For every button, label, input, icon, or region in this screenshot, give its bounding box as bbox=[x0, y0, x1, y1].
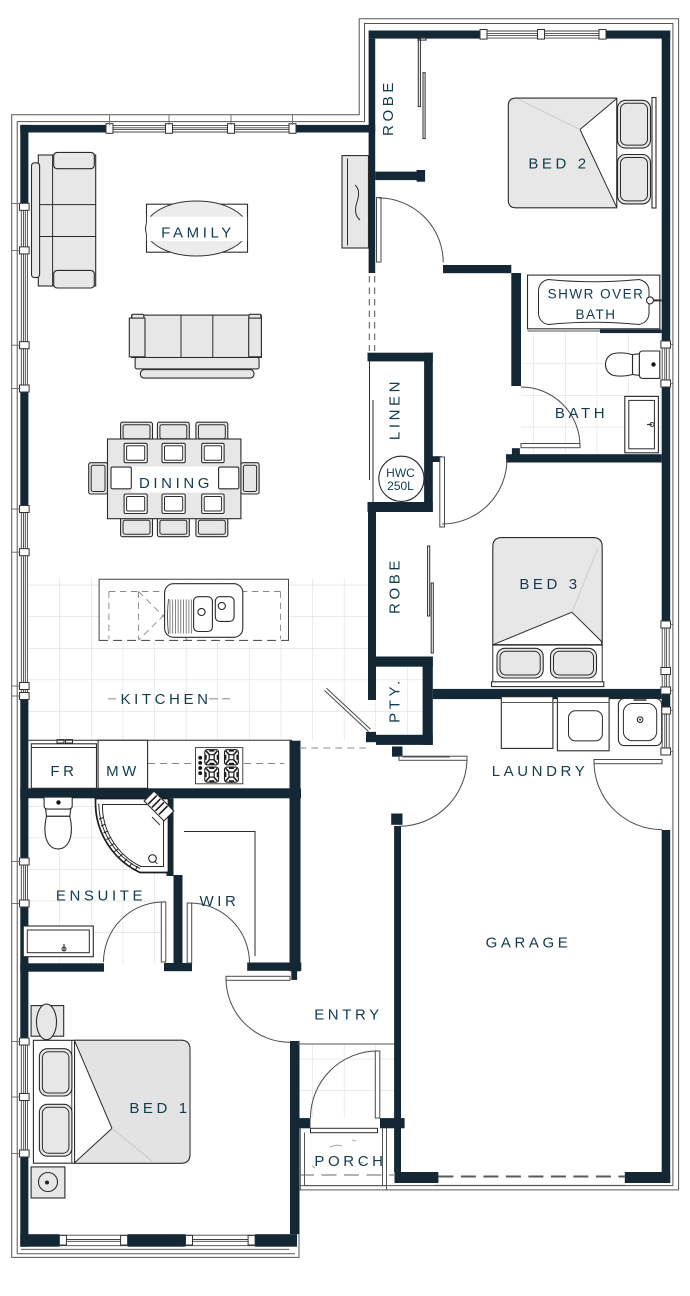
svg-text:ENSUITE: ENSUITE bbox=[56, 887, 146, 904]
svg-text:LINEN: LINEN bbox=[387, 378, 404, 440]
svg-text:LAUNDRY: LAUNDRY bbox=[492, 763, 589, 780]
svg-text:250L: 250L bbox=[387, 479, 414, 493]
svg-text:BATH: BATH bbox=[575, 307, 616, 322]
svg-text:ROBE: ROBE bbox=[387, 557, 404, 614]
svg-text:WIR: WIR bbox=[200, 893, 240, 910]
svg-text:FAMILY: FAMILY bbox=[161, 224, 235, 241]
svg-text:ENTRY: ENTRY bbox=[314, 1007, 383, 1024]
svg-text:SHWR OVER: SHWR OVER bbox=[548, 287, 645, 302]
svg-text:ROBE: ROBE bbox=[380, 79, 397, 136]
svg-text:PTY.: PTY. bbox=[387, 677, 404, 723]
svg-text:BATH: BATH bbox=[555, 405, 608, 422]
svg-text:FR: FR bbox=[50, 763, 77, 780]
svg-text:PORCH: PORCH bbox=[314, 1153, 386, 1170]
svg-text:GARAGE: GARAGE bbox=[486, 935, 572, 952]
svg-text:BED 3: BED 3 bbox=[519, 576, 580, 593]
svg-text:DINING: DINING bbox=[139, 475, 213, 492]
svg-text:BED 1: BED 1 bbox=[129, 1100, 190, 1117]
svg-text:BED 2: BED 2 bbox=[528, 156, 589, 173]
svg-text:KITCHEN: KITCHEN bbox=[120, 691, 211, 708]
svg-text:MW: MW bbox=[106, 763, 140, 780]
